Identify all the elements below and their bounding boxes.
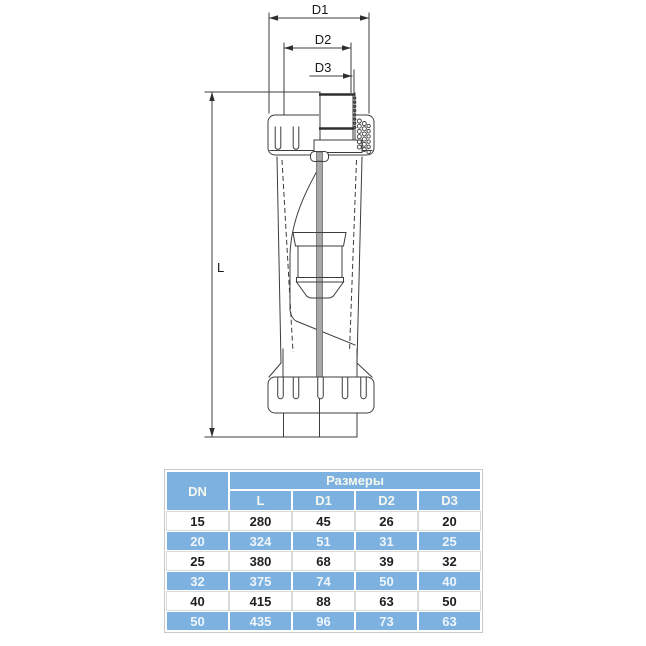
- cell-dn: 32: [167, 572, 228, 590]
- cell-dn: 40: [167, 592, 228, 610]
- table-row: 15 280 45 26 20: [167, 512, 480, 530]
- table-row: 20 324 51 31 25: [167, 532, 480, 550]
- cell-value: 63: [419, 612, 480, 630]
- cell-value: 380: [230, 552, 291, 570]
- dimension-lines: D1 D2 D3 L: [205, 2, 369, 437]
- cell-value: 375: [230, 572, 291, 590]
- cell-dn: 50: [167, 612, 228, 630]
- sub-header-l: L: [230, 491, 291, 510]
- cell-value: 63: [356, 592, 417, 610]
- sub-header-d2: D2: [356, 491, 417, 510]
- cell-value: 20: [419, 512, 480, 530]
- cell-value: 73: [356, 612, 417, 630]
- flowmeter-technical-drawing: D1 D2 D3 L: [0, 0, 646, 465]
- float-guide-rod: [317, 150, 323, 377]
- col-header-dn: DN: [167, 472, 228, 510]
- cell-value: 88: [293, 592, 354, 610]
- cell-dn: 25: [167, 552, 228, 570]
- sub-header-d3: D3: [419, 491, 480, 510]
- dimension-label-length: L: [217, 260, 224, 275]
- table-row: 40 415 88 63 50: [167, 592, 480, 610]
- cell-value: 324: [230, 532, 291, 550]
- dimensions-table: DN Размеры L D1 D2 D3 15 280 45 26 20 20…: [164, 469, 483, 633]
- sub-header-d1: D1: [293, 491, 354, 510]
- cell-dn: 20: [167, 532, 228, 550]
- group-header-sizes: Размеры: [230, 472, 480, 489]
- table-row: 50 435 96 73 63: [167, 612, 480, 630]
- cell-value: 96: [293, 612, 354, 630]
- table-row: 32 375 74 50 40: [167, 572, 480, 590]
- bottom-union-nut: [268, 377, 374, 437]
- cell-value: 280: [230, 512, 291, 530]
- cell-value: 32: [419, 552, 480, 570]
- cell-value: 435: [230, 612, 291, 630]
- table-row: 25 380 68 39 32: [167, 552, 480, 570]
- dimension-label-d2: D2: [315, 32, 332, 47]
- cell-value: 45: [293, 512, 354, 530]
- cell-value: 415: [230, 592, 291, 610]
- cell-value: 68: [293, 552, 354, 570]
- cell-value: 31: [356, 532, 417, 550]
- cell-value: 40: [419, 572, 480, 590]
- cell-dn: 15: [167, 512, 228, 530]
- cell-value: 50: [356, 572, 417, 590]
- dimension-label-d1: D1: [312, 2, 329, 17]
- cell-value: 50: [419, 592, 480, 610]
- cell-value: 74: [293, 572, 354, 590]
- dimension-label-d3: D3: [315, 60, 332, 75]
- cell-value: 26: [356, 512, 417, 530]
- bottom-adapter: [284, 413, 358, 437]
- cell-value: 25: [419, 532, 480, 550]
- product-dimension-sheet: D1 D2 D3 L: [0, 0, 646, 646]
- cell-value: 39: [356, 552, 417, 570]
- top-union-nut: [268, 92, 374, 162]
- cell-value: 51: [293, 532, 354, 550]
